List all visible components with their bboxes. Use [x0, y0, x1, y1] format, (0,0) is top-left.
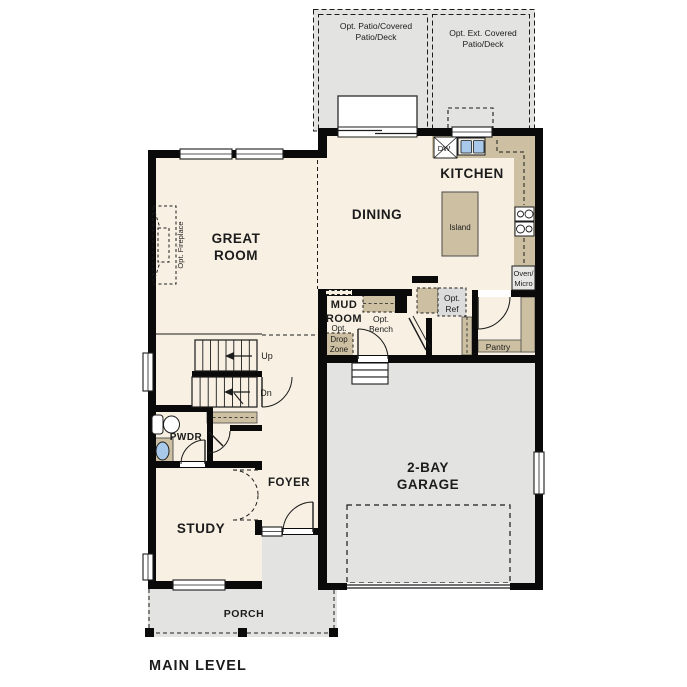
pwdr-label: PWDR: [170, 432, 203, 443]
main-level-title: MAIN LEVEL: [149, 658, 247, 674]
mud-counter: [417, 288, 438, 313]
pantry-shelf-right: [521, 297, 535, 352]
great-room-label2: ROOM: [214, 248, 258, 263]
up-label: Up: [261, 351, 273, 361]
front-door-opening: [283, 529, 313, 534]
dn-label: Dn: [260, 388, 272, 398]
study-door-opening: [255, 470, 262, 520]
bench-label: Opt.: [373, 314, 389, 324]
wall: [318, 355, 543, 363]
study-label: STUDY: [177, 521, 225, 536]
garage-label2: GARAGE: [397, 477, 459, 492]
bench-label2: Bench: [369, 324, 393, 334]
mud-room-label: MUD: [331, 299, 358, 311]
wall: [472, 290, 478, 356]
foyer-label: FOYER: [268, 477, 310, 489]
wall: [426, 318, 432, 356]
dw-label: DW: [438, 144, 451, 153]
garage-label: 2-BAY: [407, 460, 449, 475]
floorplan-drawing: Opt. Patio/Covered Patio/Deck Opt. Ext. …: [0, 0, 687, 687]
pantry-opening: [478, 290, 511, 297]
ref-label2: Ref: [445, 304, 459, 314]
wall: [192, 371, 262, 377]
patio-landing: [338, 96, 417, 129]
wall: [318, 289, 327, 590]
fireplace-label: Opt. Fireplace: [176, 221, 185, 268]
patio-left-label: Opt. Patio/Covered: [340, 21, 413, 31]
garage-steps: [352, 363, 388, 384]
drop-zone-label2: Drop: [330, 335, 348, 344]
porch-notch: [262, 535, 318, 590]
pantry-label: Pantry: [486, 342, 511, 352]
floorplan-page: Opt. Patio/Covered Patio/Deck Opt. Ext. …: [0, 0, 687, 687]
patio-left-label2: Patio/Deck: [355, 32, 397, 42]
island-label: Island: [449, 223, 470, 232]
kitchen-label: KITCHEN: [440, 166, 504, 181]
ref-label: Opt.: [444, 293, 460, 303]
wall: [230, 425, 262, 431]
oven-label: Oven/: [513, 269, 534, 278]
drop-zone-label: Opt.: [331, 324, 346, 333]
oven-label2: Micro: [514, 279, 532, 288]
patio-right-label2: Patio/Deck: [462, 39, 504, 49]
pwdr-sink: [156, 442, 169, 460]
toilet-tank: [152, 415, 163, 434]
garage-entry-opening: [358, 356, 388, 362]
wall: [395, 289, 407, 313]
great-room-label: GREAT: [212, 231, 261, 246]
pwdr-opening: [180, 462, 205, 467]
toilet-bowl: [164, 416, 180, 433]
garage-vehicle-door: [347, 583, 510, 590]
dining-label: DINING: [352, 207, 402, 222]
wall: [412, 276, 438, 283]
drop-zone-label3: Zone: [330, 345, 349, 354]
patio-right-label: Opt. Ext. Covered: [449, 28, 517, 38]
sliding-door: [338, 127, 417, 137]
porch-label: PORCH: [224, 608, 264, 620]
wall: [207, 405, 213, 468]
